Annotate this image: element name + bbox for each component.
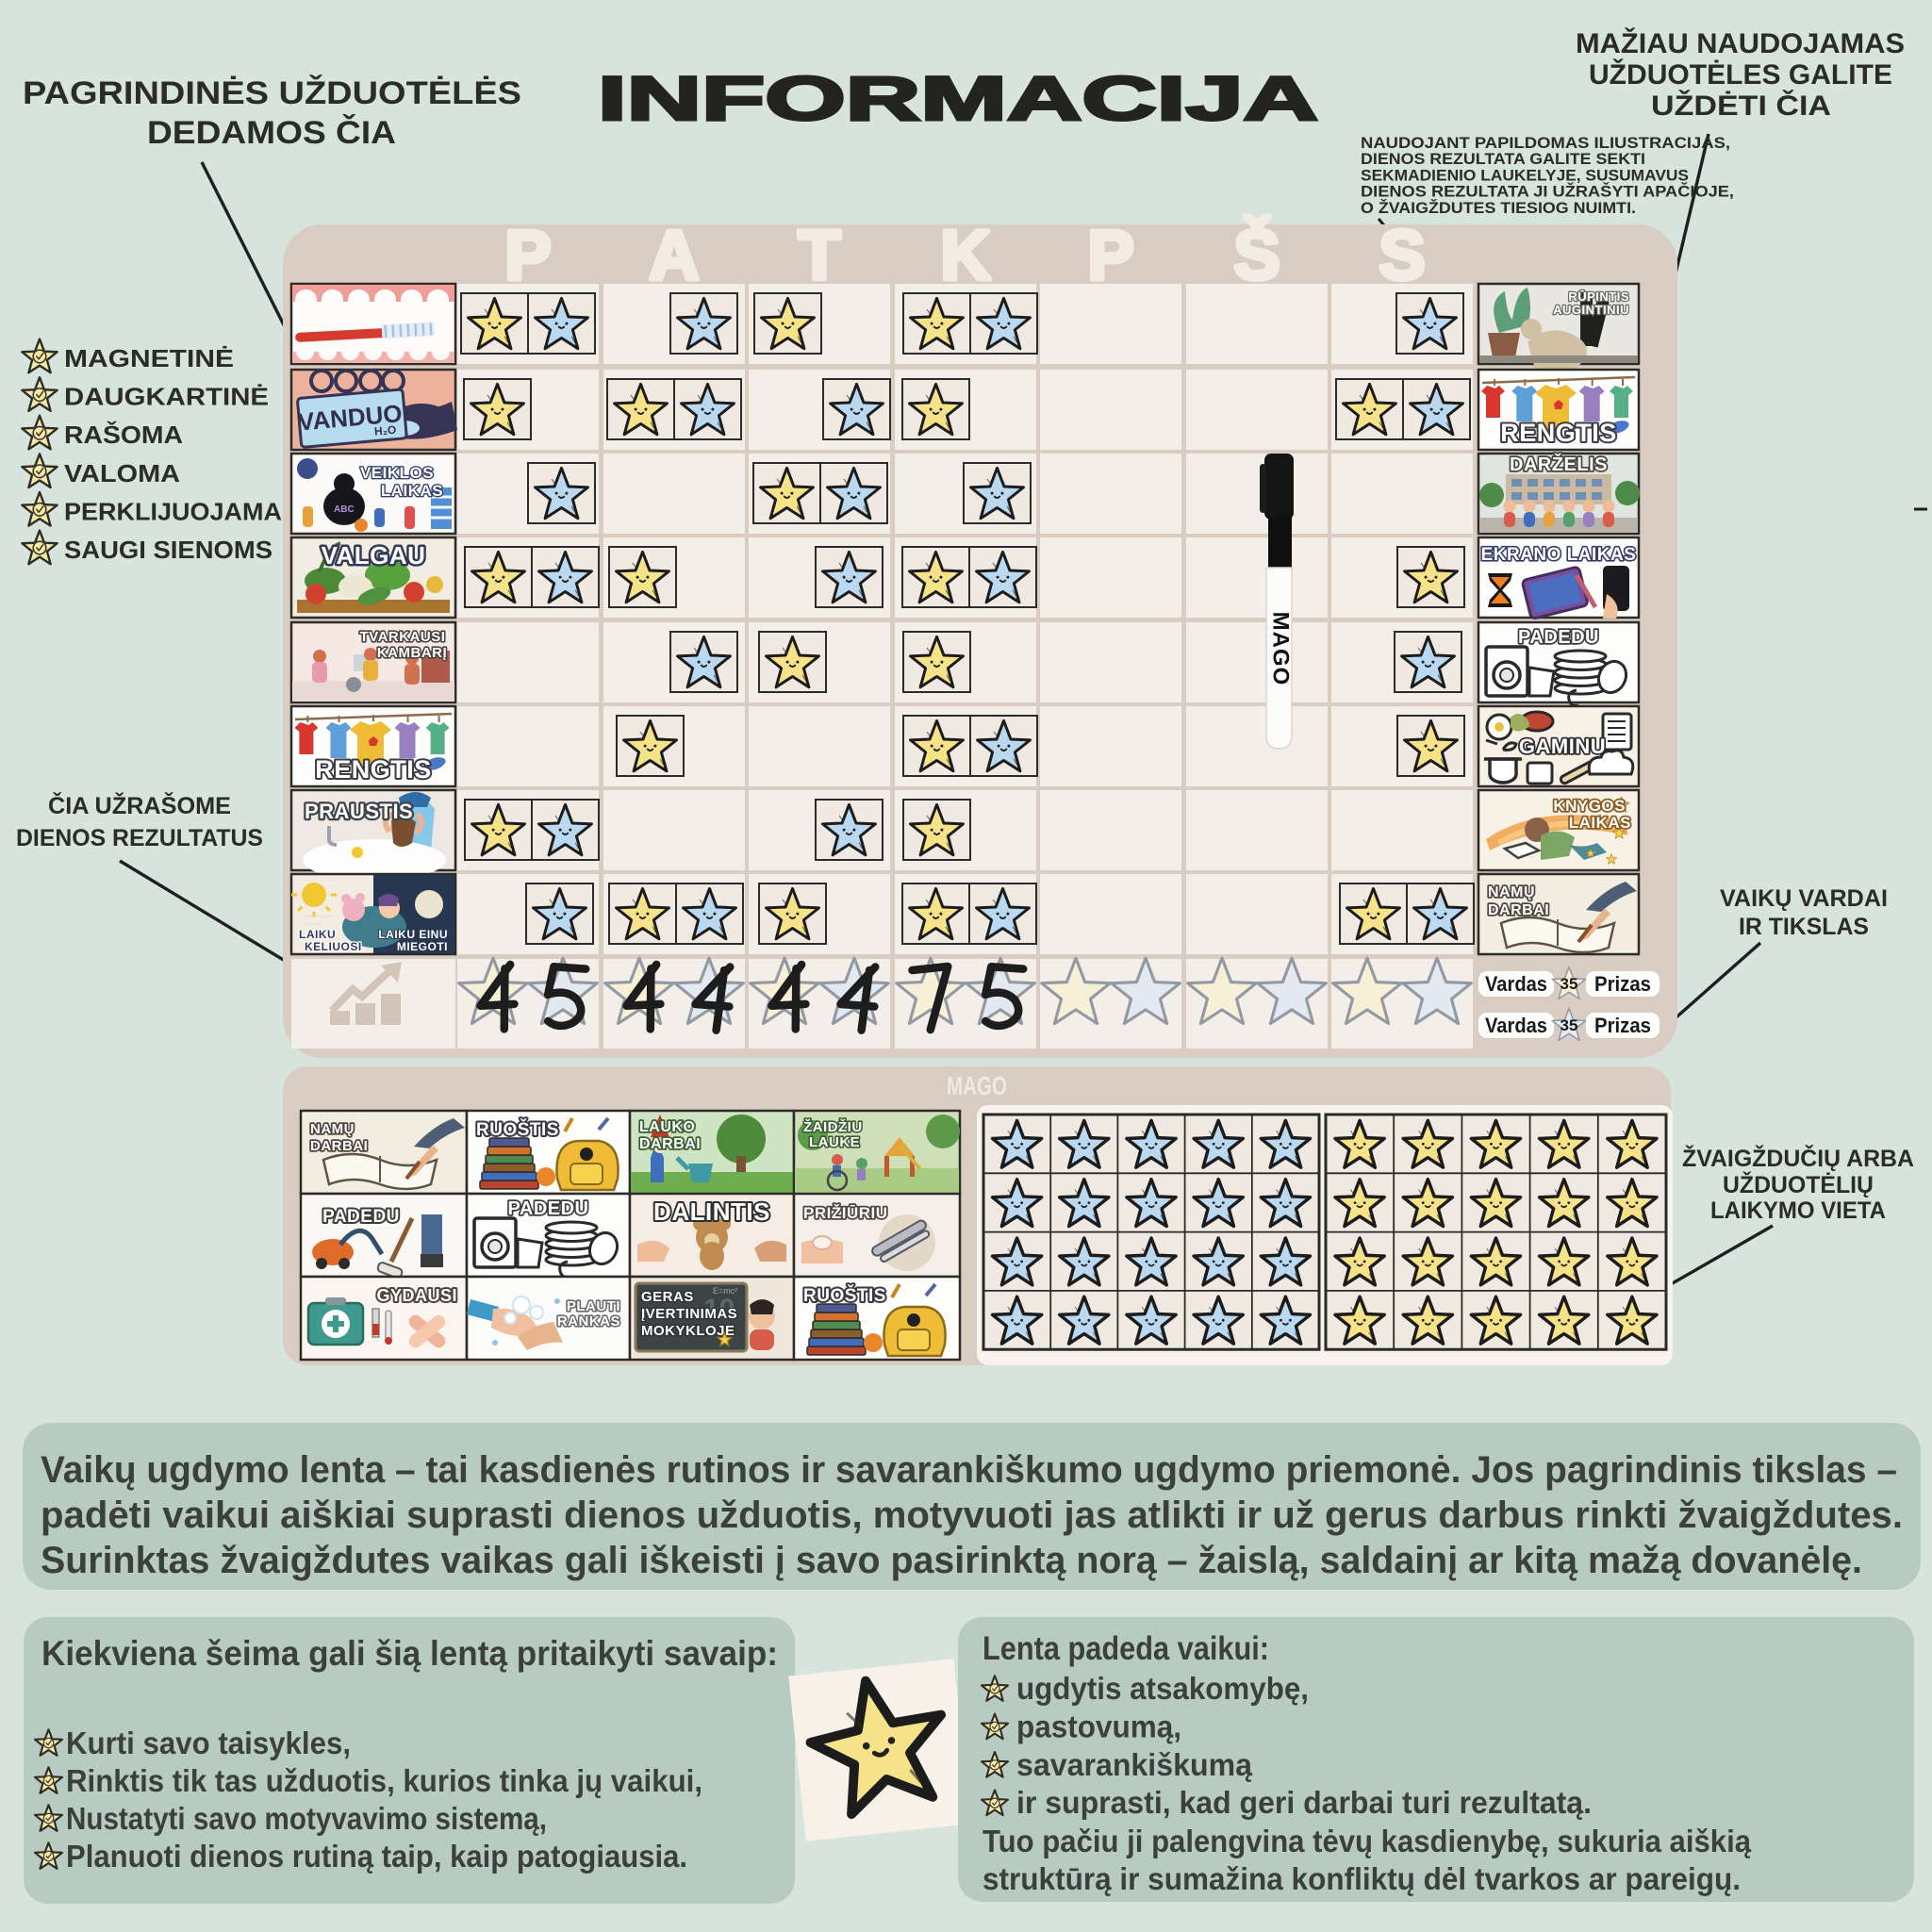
svg-text:ŽVAIGŽDUČIŲ ARBA: ŽVAIGŽDUČIŲ ARBA [1682,1144,1914,1172]
svg-text:Vardas: Vardas [1485,972,1547,996]
svg-text:PAGRINDINĖS UŽDUOTĖLĖS: PAGRINDINĖS UŽDUOTĖLĖS [23,75,521,111]
svg-text:O ŽVAIGŽDUTES TIESIOG NUIMTI.: O ŽVAIGŽDUTES TIESIOG NUIMTI. [1361,199,1636,217]
svg-text:PADEDU: PADEDU [1518,627,1599,648]
svg-text:PLAUTI: PLAUTI [567,1298,620,1314]
svg-text:pastovumą,: pastovumą, [1016,1709,1181,1743]
svg-text:GYDAUSI: GYDAUSI [376,1286,457,1305]
svg-text:RAŠOMA: RAŠOMA [64,421,183,449]
svg-text:H₂O: H₂O [373,423,396,438]
svg-text:AUGINTINIU: AUGINTINIU [1553,303,1629,317]
svg-text:Rinktis tik tas užduotis, kuri: Rinktis tik tas užduotis, kurios tinka j… [66,1763,702,1798]
svg-text:LAIKAS: LAIKAS [1569,814,1631,832]
svg-text:MAGO: MAGO [947,1071,1007,1100]
svg-text:DIENOS REZULTATA GALITE SEKTI: DIENOS REZULTATA GALITE SEKTI [1361,151,1645,168]
svg-text:DAUGKARTINĖ: DAUGKARTINĖ [64,383,269,411]
svg-text:MAGO: MAGO [1268,612,1294,686]
svg-text:E=mc²: E=mc² [713,1286,737,1296]
svg-text:padėti vaikui aiškiai suprasti: padėti vaikui aiškiai suprasti dienos už… [41,1494,1903,1536]
svg-text:RENGTIS: RENGTIS [315,755,432,784]
svg-text:NAMŲ: NAMŲ [1488,884,1535,900]
svg-text:Planuoti dienos rutiną taip, k: Planuoti dienos rutiną taip, kaip patogi… [66,1839,687,1874]
svg-text:MAŽIAU NAUDOJAMAS: MAŽIAU NAUDOJAMAS [1576,27,1905,59]
svg-text:RUOŠTIS: RUOŠTIS [803,1285,886,1306]
svg-text:PRIŽIŪRIU: PRIŽIŪRIU [803,1204,888,1222]
svg-text:PERKLIJUOJAMA: PERKLIJUOJAMA [64,497,282,525]
svg-text:RŪPINTIS: RŪPINTIS [1568,289,1629,304]
svg-text:P: P [1087,216,1133,294]
svg-text:LAUKO: LAUKO [639,1119,695,1135]
svg-text:ir suprasti, kad geri darbai t: ir suprasti, kad geri darbai turi rezult… [1016,1785,1592,1820]
svg-text:GERAS: GERAS [641,1289,694,1305]
svg-text:VEIKLOS: VEIKLOS [360,464,434,482]
svg-text:RANKAS: RANKAS [557,1313,620,1329]
svg-text:Vardas: Vardas [1485,1014,1547,1037]
svg-text:MIEGOTI: MIEGOTI [397,940,448,953]
svg-text:DARBAI: DARBAI [310,1138,368,1154]
svg-text:A: A [649,216,699,294]
svg-text:MOKYKLOJE: MOKYKLOJE [641,1323,735,1339]
svg-text:Surinktas žvaigždutes vaikas g: Surinktas žvaigždutes vaikas gali iškeis… [41,1540,1862,1581]
svg-text:S: S [1379,216,1425,294]
svg-text:RENGTIS: RENGTIS [1500,419,1617,447]
svg-text:NAUDOJANT PAPILDOMAS ILIUSTRAC: NAUDOJANT PAPILDOMAS ILIUSTRACIJAS, [1361,135,1730,152]
svg-text:EKRANO LAIKAS: EKRANO LAIKAS [1481,545,1637,565]
svg-text:DARBAI: DARBAI [639,1136,701,1152]
svg-text:UŽDUOTĖLES GALITE: UŽDUOTĖLES GALITE [1589,58,1892,91]
svg-text:P: P [504,216,551,294]
svg-text:Š: Š [1233,216,1280,294]
svg-text:KELIUOSI: KELIUOSI [305,940,362,953]
svg-text:SEKMADIENIO LAUKELYJE, SUSUMAV: SEKMADIENIO LAUKELYJE, SUSUMAVUS [1361,167,1689,184]
svg-text:Lenta padeda vaikui:: Lenta padeda vaikui: [983,1630,1269,1667]
svg-text:RUOŠTIS: RUOŠTIS [476,1119,559,1140]
svg-text:ČIA UŽRAŠOME: ČIA UŽRAŠOME [48,791,231,819]
svg-text:KNYGOS: KNYGOS [1553,797,1626,815]
svg-text:DARŽELIS: DARŽELIS [1510,453,1608,475]
svg-text:Vaikų ugdymo lenta – tai kasdi: Vaikų ugdymo lenta – tai kasdienės rutin… [41,1449,1897,1491]
svg-text:ŽAIDŽIU: ŽAIDŽIU [803,1118,863,1135]
svg-text:DIENOS REZULTATA JI UŽRAŠYTI A: DIENOS REZULTATA JI UŽRAŠYTI APAČIOJE, [1361,183,1734,201]
svg-text:TVARKAUSI: TVARKAUSI [360,629,446,645]
svg-text:DEDAMOS ČIA: DEDAMOS ČIA [147,114,396,151]
svg-text:Kurti savo taisykles,: Kurti savo taisykles, [66,1726,351,1760]
svg-text:GAMINU: GAMINU [1519,735,1606,758]
svg-text:Kiekviena šeima gali šią lentą: Kiekviena šeima gali šią lentą pritaikyt… [41,1634,778,1673]
svg-text:UŽDĖTI ČIA: UŽDĖTI ČIA [1651,90,1831,122]
svg-text:IR TIKSLAS: IR TIKSLAS [1739,914,1869,940]
svg-text:savarankiškumą: savarankiškumą [1016,1747,1253,1782]
svg-text:VALGAU: VALGAU [322,541,426,570]
svg-text:T: T [798,216,840,294]
svg-text:ugdytis atsakomybę,: ugdytis atsakomybę, [1016,1671,1309,1706]
svg-text:Prizas: Prizas [1594,1014,1651,1037]
svg-text:VAIKŲ VARDAI: VAIKŲ VARDAI [1720,885,1888,912]
svg-text:MAGNETINĖ: MAGNETINĖ [64,344,234,372]
svg-text:35: 35 [1560,975,1578,993]
svg-text:PADEDU: PADEDU [508,1198,589,1219]
svg-text:K: K [940,216,990,294]
svg-text:VALOMA: VALOMA [64,459,180,487]
svg-text:SAUGI SIENOMS: SAUGI SIENOMS [64,536,272,564]
svg-text:LAIKU: LAIKU [299,928,336,941]
svg-text:ĮVERTINIMAS: ĮVERTINIMAS [641,1306,737,1322]
svg-text:PRAUSTIS: PRAUSTIS [305,800,413,823]
svg-text:LAIKAS: LAIKAS [381,482,443,500]
svg-text:KAMBARĮ: KAMBARĮ [377,645,447,661]
svg-text:Nustatyti savo motyvavimo sist: Nustatyti savo motyvavimo sistemą, [66,1801,547,1836]
svg-text:DARBAI: DARBAI [1488,902,1549,918]
svg-text:Prizas: Prizas [1594,972,1651,996]
svg-text:LAIKU EINU: LAIKU EINU [378,928,448,941]
svg-text:ABC: ABC [334,504,355,515]
svg-text:struktūrą ir sumažina konflikt: struktūrą ir sumažina konfliktų dėl tvar… [983,1861,1741,1896]
svg-text:DIENOS REZULTATUS: DIENOS REZULTATUS [16,825,263,851]
svg-text:LAIKYMO VIETA: LAIKYMO VIETA [1710,1197,1886,1224]
svg-text:PADEDU: PADEDU [322,1207,400,1227]
svg-text:DALINTIS: DALINTIS [653,1197,770,1226]
svg-text:Tuo pačiu ji palengvina tėvų k: Tuo pačiu ji palengvina tėvų kasdienybę,… [983,1824,1752,1858]
svg-text:NAMŲ: NAMŲ [310,1121,355,1137]
svg-text:INFORMACIJA: INFORMACIJA [598,63,1318,133]
svg-text:LAUKE: LAUKE [809,1134,860,1150]
svg-text:35: 35 [1560,1016,1578,1034]
svg-text:UŽDUOTĖLIŲ: UŽDUOTĖLIŲ [1723,1170,1874,1198]
